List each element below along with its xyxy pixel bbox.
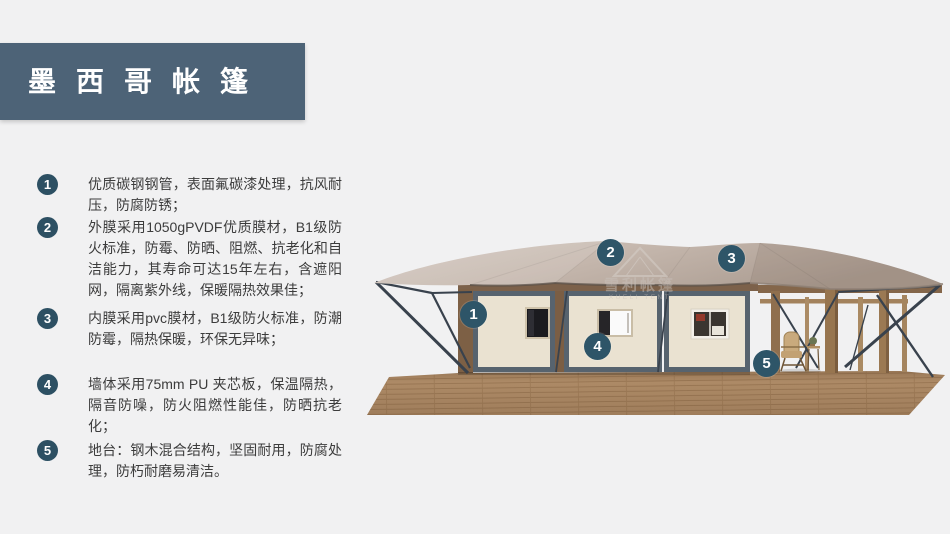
separator-wood-post bbox=[555, 291, 564, 372]
feature-text: 优质碳钢钢管，表面氟碳漆处理，抗风耐压，防腐防锈； bbox=[88, 174, 342, 216]
feature-item: 5 地台：钢木混合结构，坚固耐用，防腐处理，防朽耐磨易清洁。 bbox=[37, 440, 342, 482]
deck-platform bbox=[367, 371, 945, 415]
image-callout-3: 3 bbox=[718, 245, 745, 272]
feature-number-badge: 2 bbox=[37, 217, 58, 238]
cabin-module-left bbox=[473, 291, 555, 372]
feature-number-badge: 4 bbox=[37, 374, 58, 395]
cabin-module-middle bbox=[564, 291, 662, 372]
feature-number-badge: 1 bbox=[37, 174, 58, 195]
feature-item: 2 外膜采用1050gPVDF优质膜材，B1级防火标准，防霉、防晒、阻燃、抗老化… bbox=[37, 217, 342, 301]
left-brace-rods bbox=[376, 282, 472, 373]
feature-text: 内膜采用pvc膜材，B1级防火标准，防潮防霉，隔热保暖，环保无异味； bbox=[88, 308, 342, 350]
tent-svg: 雪利帐篷 XUELI TENT bbox=[360, 195, 950, 425]
image-callout-5: 5 bbox=[753, 350, 780, 377]
feature-text: 外膜采用1050gPVDF优质膜材，B1级防火标准，防霉、防晒、阻燃、抗老化和自… bbox=[88, 217, 342, 301]
feature-item: 4 墙体采用75mm PU 夹芯板，保温隔热，隔音防噪，防火阻燃性能佳，防晒抗老… bbox=[37, 374, 342, 437]
feature-text: 墙体采用75mm PU 夹芯板，保温隔热，隔音防噪，防火阻燃性能佳，防晒抗老化； bbox=[88, 374, 342, 437]
image-callout-2: 2 bbox=[597, 239, 624, 266]
image-callout-1: 1 bbox=[460, 301, 487, 328]
watermark-brand-en: XUELI TENT bbox=[609, 294, 671, 301]
porch-brace-rods bbox=[773, 285, 940, 377]
feature-item: 3 内膜采用pvc膜材，B1级防火标准，防潮防霉，隔热保暖，环保无异味； bbox=[37, 308, 342, 350]
feature-text: 地台：钢木混合结构，坚固耐用，防腐处理，防朽耐磨易清洁。 bbox=[88, 440, 342, 482]
tent-illustration: 雪利帐篷 XUELI TENT bbox=[360, 195, 950, 425]
cabin-module-right bbox=[664, 291, 750, 372]
page-title: 墨西哥帐篷 bbox=[28, 68, 268, 96]
porch-structure bbox=[758, 285, 942, 377]
feature-number-badge: 3 bbox=[37, 308, 58, 329]
title-banner: 墨西哥帐篷 bbox=[0, 43, 305, 120]
feature-item: 1 优质碳钢钢管，表面氟碳漆处理，抗风耐压，防腐防锈； bbox=[37, 174, 342, 216]
image-callout-4: 4 bbox=[584, 333, 611, 360]
watermark-brand-cn: 雪利帐篷 bbox=[604, 276, 676, 294]
feature-number-badge: 5 bbox=[37, 440, 58, 461]
slide: 墨西哥帐篷 1 优质碳钢钢管，表面氟碳漆处理，抗风耐压，防腐防锈； 2 外膜采用… bbox=[0, 0, 950, 534]
side-table bbox=[807, 346, 820, 349]
plant bbox=[809, 337, 817, 345]
